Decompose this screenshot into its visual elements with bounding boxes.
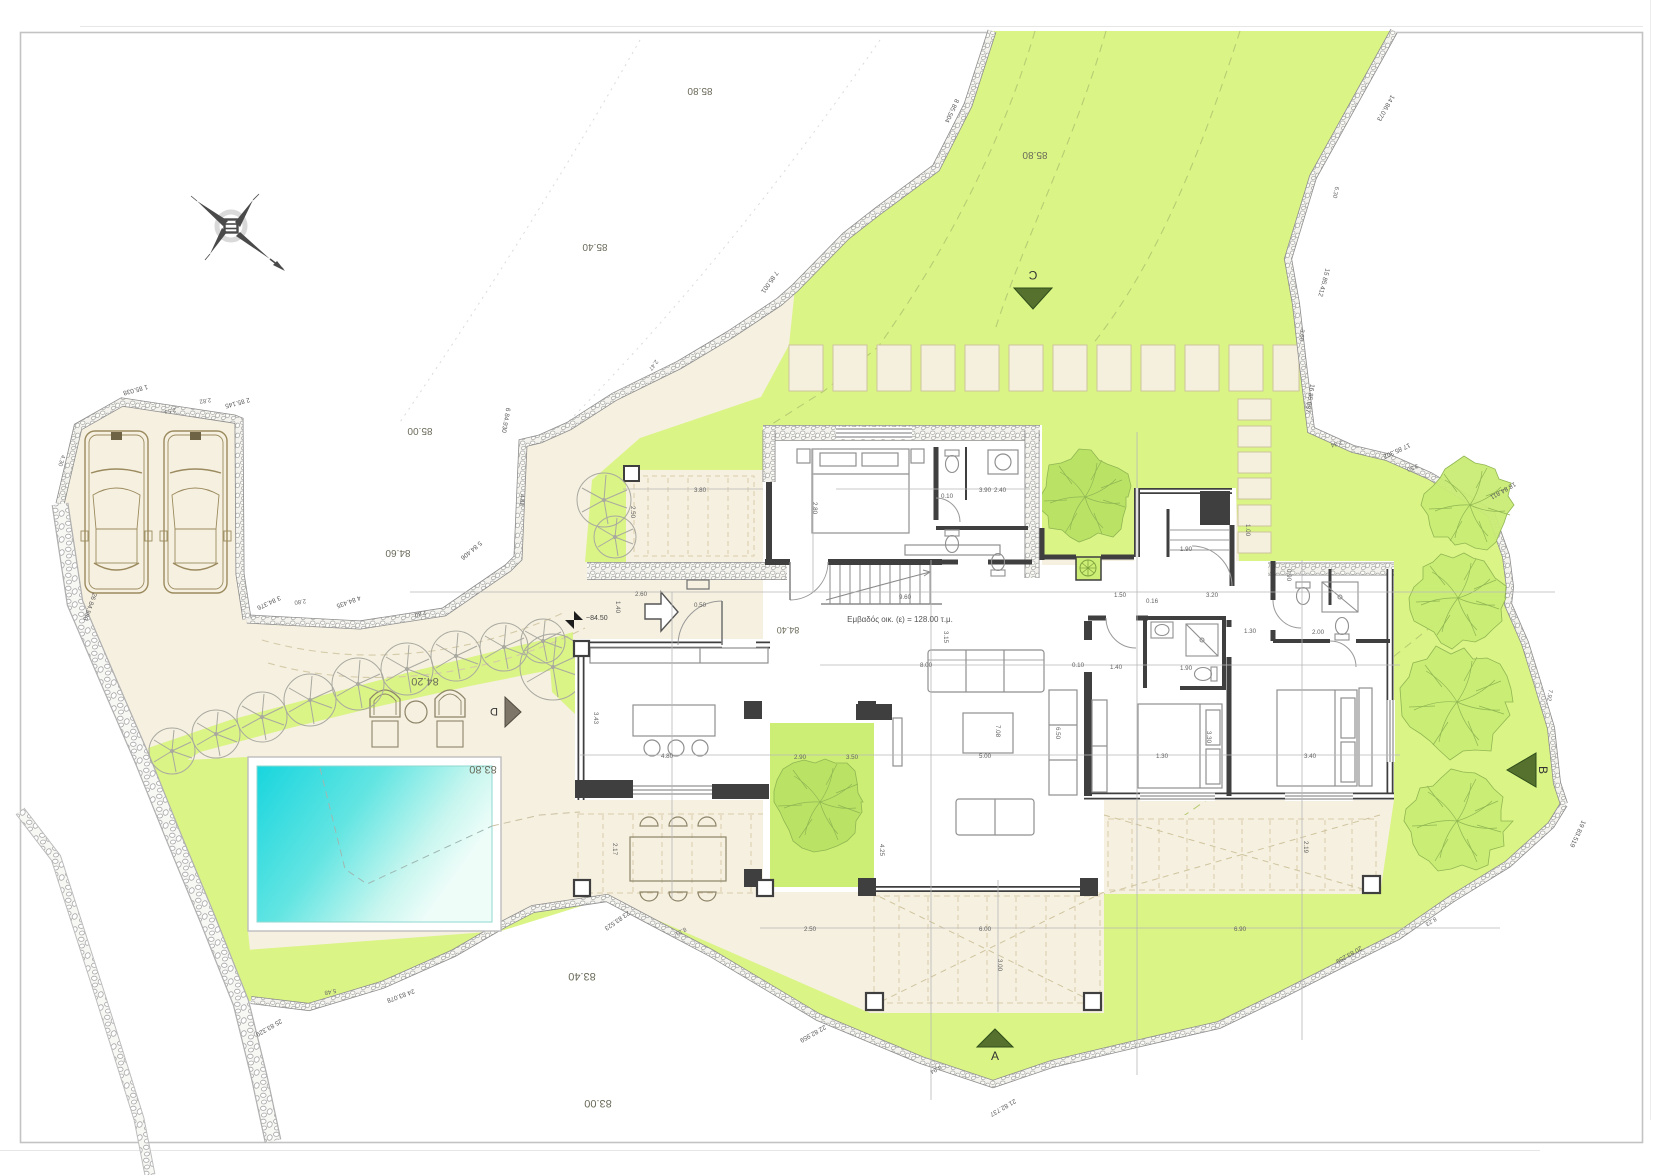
svg-text:84.20: 84.20 bbox=[411, 675, 439, 687]
svg-text:83.00: 83.00 bbox=[584, 1097, 612, 1109]
svg-text:0.16: 0.16 bbox=[1146, 598, 1159, 605]
svg-text:9.60: 9.60 bbox=[899, 594, 912, 601]
svg-text:1.40: 1.40 bbox=[1110, 664, 1123, 671]
svg-text:4.88: 4.88 bbox=[518, 494, 524, 507]
svg-text:0.10: 0.10 bbox=[941, 493, 954, 500]
svg-text:D: D bbox=[490, 705, 498, 717]
svg-text:7.08: 7.08 bbox=[994, 725, 1001, 738]
svg-text:2.80: 2.80 bbox=[811, 502, 818, 515]
svg-text:2.60: 2.60 bbox=[635, 591, 648, 598]
svg-text:1.40: 1.40 bbox=[614, 601, 621, 614]
svg-text:8.00: 8.00 bbox=[920, 662, 933, 669]
svg-text:0.50: 0.50 bbox=[694, 602, 707, 609]
svg-text:6.00: 6.00 bbox=[979, 926, 992, 933]
svg-text:0.10: 0.10 bbox=[1072, 662, 1085, 669]
svg-text:1.00: 1.00 bbox=[1244, 524, 1251, 537]
svg-text:1.90: 1.90 bbox=[1180, 665, 1193, 672]
svg-text:0.90: 0.90 bbox=[1285, 569, 1292, 582]
svg-text:1.30: 1.30 bbox=[1156, 753, 1169, 760]
svg-text:85.80: 85.80 bbox=[1022, 149, 1047, 160]
svg-text:2.40: 2.40 bbox=[994, 487, 1007, 494]
svg-text:3.43: 3.43 bbox=[592, 712, 599, 725]
svg-text:3.00: 3.00 bbox=[996, 959, 1003, 972]
svg-text:85.40: 85.40 bbox=[582, 241, 607, 252]
svg-text:2.17: 2.17 bbox=[611, 843, 618, 856]
svg-text:84.60: 84.60 bbox=[385, 547, 410, 558]
svg-text:1.90: 1.90 bbox=[1180, 546, 1193, 553]
svg-text:3.80: 3.80 bbox=[694, 487, 707, 494]
svg-text:6.50: 6.50 bbox=[1054, 727, 1061, 740]
svg-text:B: B bbox=[1536, 766, 1550, 774]
svg-text:2.00: 2.00 bbox=[1312, 629, 1325, 636]
svg-text:6.90: 6.90 bbox=[1234, 926, 1247, 933]
svg-text:1.50: 1.50 bbox=[1114, 592, 1127, 599]
svg-text:2.50: 2.50 bbox=[629, 506, 636, 519]
svg-text:85.00: 85.00 bbox=[407, 425, 432, 436]
svg-text:4.80: 4.80 bbox=[661, 753, 674, 760]
svg-text:2.90: 2.90 bbox=[794, 754, 807, 761]
svg-text:~84.50: ~84.50 bbox=[586, 615, 608, 622]
svg-text:83.80: 83.80 bbox=[469, 763, 497, 775]
svg-text:2.19: 2.19 bbox=[1302, 841, 1309, 854]
svg-text:C: C bbox=[1028, 268, 1037, 282]
svg-text:4.25: 4.25 bbox=[878, 844, 885, 857]
svg-text:2.50: 2.50 bbox=[804, 926, 817, 933]
svg-text:A: A bbox=[991, 1049, 999, 1063]
svg-text:83.40: 83.40 bbox=[568, 970, 596, 982]
svg-text:3.40: 3.40 bbox=[1304, 753, 1317, 760]
svg-text:Εμβαδός οικ. (ε) = 128.00 τ.μ.: Εμβαδός οικ. (ε) = 128.00 τ.μ. bbox=[847, 615, 953, 624]
svg-text:3.50: 3.50 bbox=[846, 754, 859, 761]
svg-text:5.00: 5.00 bbox=[979, 753, 992, 760]
svg-text:3.60: 3.60 bbox=[1297, 329, 1304, 342]
svg-text:84.40: 84.40 bbox=[777, 625, 800, 635]
svg-text:3.90: 3.90 bbox=[979, 487, 992, 494]
svg-text:3.15: 3.15 bbox=[942, 631, 949, 644]
svg-text:3.30: 3.30 bbox=[1205, 731, 1212, 744]
svg-text:85.80: 85.80 bbox=[687, 85, 712, 96]
svg-text:3.20: 3.20 bbox=[1206, 592, 1219, 599]
svg-text:1.30: 1.30 bbox=[1244, 628, 1257, 635]
